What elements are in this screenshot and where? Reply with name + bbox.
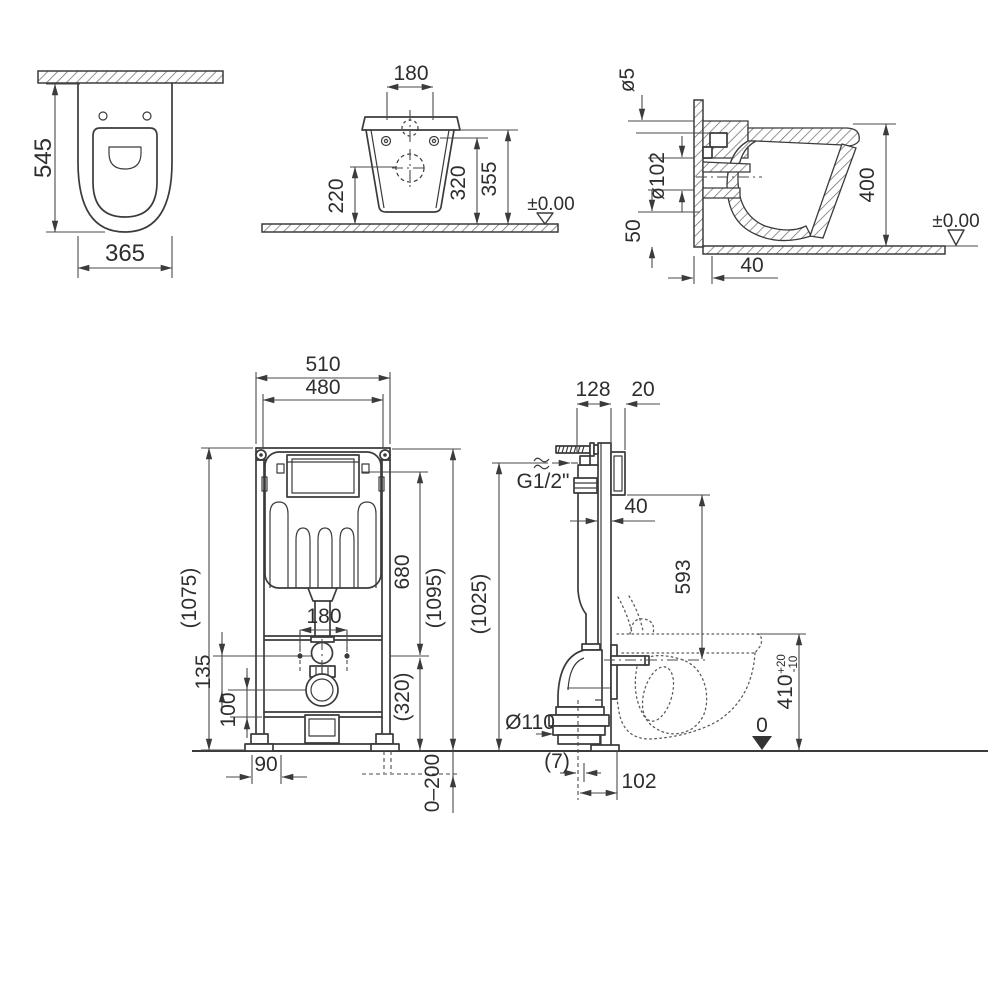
- floor-section: [703, 246, 945, 254]
- datum-level: ±0.00: [527, 194, 574, 224]
- dim-1025: (1025): [468, 463, 548, 750]
- pan-outline: [362, 110, 460, 212]
- svg-text:480: 480: [305, 376, 340, 399]
- drain-elbow: [549, 650, 609, 800]
- svg-text:400: 400: [856, 167, 879, 202]
- svg-text:320: 320: [447, 165, 470, 200]
- wall-section: [694, 100, 703, 247]
- seat-ring: [93, 128, 157, 217]
- seat-hole-section: [710, 133, 727, 147]
- svg-text:90: 90: [254, 753, 277, 776]
- dim-320: (320): [391, 658, 420, 750]
- cistern-neck: [308, 588, 337, 601]
- cistern-side: [574, 456, 600, 650]
- floor-section: [262, 224, 558, 232]
- dim-102: 102: [580, 751, 657, 800]
- outlet-bottom-section: [703, 188, 740, 198]
- dim-480: 480: [263, 376, 383, 448]
- post-foot: [591, 745, 619, 751]
- svg-text:545: 545: [30, 138, 57, 178]
- fixing-hole: [382, 137, 391, 146]
- svg-text:102: 102: [621, 770, 656, 793]
- svg-text:510: 510: [305, 353, 340, 376]
- dim-400: 400: [853, 124, 896, 246]
- outlet-top-section: [703, 162, 750, 172]
- svg-text:-10: -10: [788, 656, 800, 673]
- svg-text:Ø110: Ø110: [505, 711, 555, 734]
- svg-text:(320): (320): [391, 672, 414, 721]
- datum-triangle-filled: [752, 736, 772, 750]
- svg-text:(1075): (1075): [178, 568, 201, 629]
- pipe-flange: [582, 644, 600, 650]
- inlet-connection: [580, 456, 590, 465]
- frame-front-view: 510 480 (1075) 680 (320) (1095): [178, 353, 461, 813]
- dim-220: 220: [325, 167, 396, 224]
- svg-text:0: 0: [756, 714, 768, 737]
- fill-valve: [574, 478, 597, 493]
- svg-text:100: 100: [217, 692, 240, 727]
- pan-front-view: 180 220 320 355 ±0.00: [262, 62, 575, 232]
- datum-triangle: [537, 213, 553, 224]
- hinge-hole: [99, 112, 107, 120]
- fixing-hole: [430, 137, 439, 146]
- svg-text:680: 680: [391, 554, 414, 589]
- pan-cap: [362, 117, 460, 130]
- svg-text:ø102: ø102: [646, 152, 669, 200]
- svg-text:±0.00: ±0.00: [527, 194, 574, 215]
- rim-section: [748, 128, 859, 146]
- svg-text:135: 135: [192, 654, 215, 689]
- pan-side-view: ø5 ø102 400 50 40: [616, 68, 980, 284]
- dim-365: 365: [78, 236, 172, 278]
- dim-1075: (1075): [178, 448, 253, 750]
- svg-text:220: 220: [325, 178, 348, 213]
- svg-text:0–200: 0–200: [421, 754, 444, 812]
- svg-text:±0.00: ±0.00: [932, 211, 979, 232]
- dim-drain-dia: Ø110: [505, 711, 555, 734]
- datum-level: ±0.00: [932, 211, 979, 246]
- svg-text:50: 50: [622, 219, 645, 242]
- pan-section: [696, 121, 859, 241]
- dim-40: 40: [668, 254, 778, 284]
- wall-section: [38, 71, 223, 83]
- svg-text:593: 593: [672, 559, 695, 594]
- supply-wave-icon: [534, 458, 549, 462]
- technical-drawing-page: 545 365 180: [0, 0, 1000, 1000]
- svg-text:180: 180: [306, 605, 341, 628]
- svg-text:40: 40: [740, 254, 763, 277]
- svg-text:128: 128: [575, 378, 610, 401]
- svg-text:ø5: ø5: [616, 68, 639, 93]
- dim-128: 128: [575, 378, 611, 452]
- svg-text:+20: +20: [776, 654, 788, 674]
- wall-hung-wc-installation-drawing: 545 365 180: [0, 0, 1000, 1000]
- back-wall-section: [810, 144, 856, 238]
- svg-text:20: 20: [631, 378, 654, 401]
- dim-90: 90: [226, 753, 307, 784]
- pan-outline: [78, 83, 172, 232]
- left-foot: [251, 734, 268, 744]
- dim-foot-range: 0–200: [362, 751, 459, 813]
- frame-side-view: G1/2" 128 20 40 593 (1025): [468, 378, 806, 800]
- fixing-stud: [344, 653, 349, 658]
- svg-text:180: 180: [393, 62, 428, 85]
- pipe-bracket: [611, 645, 617, 699]
- svg-text:(7): (7): [544, 750, 570, 773]
- svg-text:40: 40: [624, 495, 647, 518]
- dim-outlet-dia: ø102: [646, 136, 694, 212]
- svg-text:(1025): (1025): [468, 574, 491, 635]
- svg-text:(1095): (1095): [423, 568, 446, 629]
- dim-7: (7): [544, 750, 601, 782]
- datum-triangle: [948, 230, 964, 245]
- hinge-cover: [109, 147, 141, 169]
- dim-40: 40: [570, 495, 655, 521]
- right-foot: [376, 734, 393, 744]
- flush-plate-opening: [287, 455, 359, 497]
- flush-plate-housing: [611, 452, 625, 495]
- dim-50: 50: [622, 190, 700, 268]
- svg-text:365: 365: [105, 240, 145, 267]
- datum-zero: 0: [752, 714, 772, 750]
- pan-top-view: 545 365: [30, 71, 223, 278]
- svg-text:355: 355: [478, 161, 501, 196]
- hinge-hole: [143, 112, 151, 120]
- svg-text:G1/2": G1/2": [517, 470, 570, 493]
- fixing-stud: [297, 653, 302, 658]
- dim-20: 20: [625, 378, 660, 450]
- svg-text:410: 410: [774, 674, 797, 709]
- wc-dotted-outline: [615, 596, 762, 739]
